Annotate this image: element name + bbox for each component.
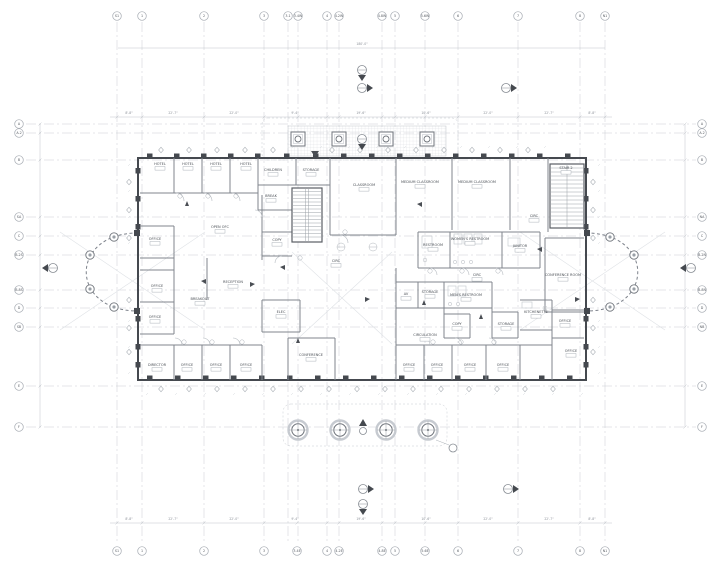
svg-text:OFFICE: OFFICE xyxy=(559,319,571,323)
room-label: CONFERENCE ROOM xyxy=(545,273,581,281)
grid-bubble: 8 xyxy=(576,547,585,556)
svg-text:BREAK: BREAK xyxy=(265,194,277,198)
svg-text:4.8W: 4.8W xyxy=(378,14,387,18)
grid-bubble: 4.2W xyxy=(335,12,344,21)
svg-text:MEN'S RESTROOM: MEN'S RESTROOM xyxy=(450,293,482,297)
room-label: OFFICE xyxy=(559,319,571,327)
svg-text:6: 6 xyxy=(457,549,459,553)
svg-text:AV: AV xyxy=(404,292,409,296)
grid-bubble: 4 xyxy=(323,12,332,21)
svg-text:OFFICE: OFFICE xyxy=(181,363,193,367)
svg-text:OFFICE: OFFICE xyxy=(151,284,163,288)
svg-text:22'-7": 22'-7" xyxy=(544,517,554,521)
svg-text:HOTEL: HOTEL xyxy=(154,162,166,166)
svg-text:CONFERENCE ROOM: CONFERENCE ROOM xyxy=(545,273,581,277)
grid-bubble: NB xyxy=(698,323,707,332)
room-label: OFFICE xyxy=(240,363,252,371)
room-label: OFFICE xyxy=(403,363,415,371)
svg-text:STORAGE: STORAGE xyxy=(498,322,515,326)
room-label: JANITOR xyxy=(512,244,528,252)
svg-text:F: F xyxy=(701,425,703,429)
svg-text:22'-7": 22'-7" xyxy=(544,111,554,115)
svg-text:OFFICE: OFFICE xyxy=(240,363,252,367)
grid-bubble: 2 xyxy=(200,547,209,556)
svg-text:N1: N1 xyxy=(603,549,608,553)
grid-bubble: E xyxy=(15,382,24,391)
svg-text:A.2: A.2 xyxy=(16,131,21,135)
room-label: CIRC xyxy=(331,259,341,267)
svg-text:2: 2 xyxy=(203,549,205,553)
svg-text:CONFERENCE: CONFERENCE xyxy=(299,353,323,357)
grid-bubble: 3 xyxy=(260,547,269,556)
svg-text:STAIR 2: STAIR 2 xyxy=(559,166,572,170)
grid-bubble: E xyxy=(698,382,707,391)
room-label: MEDIUM CLASSROOM xyxy=(401,180,439,188)
svg-text:MEDIUM CLASSROOM: MEDIUM CLASSROOM xyxy=(458,180,496,184)
svg-text:9'-4": 9'-4" xyxy=(291,111,299,115)
room-label: STORAGE xyxy=(498,322,515,330)
grid-bubble: A xyxy=(15,120,24,129)
room-label: OFFICE xyxy=(149,237,161,245)
room-label: BREAK xyxy=(265,194,277,202)
svg-text:5.6W: 5.6W xyxy=(421,14,430,18)
room-label: HOTEL xyxy=(182,162,194,170)
svg-text:5: 5 xyxy=(394,549,396,553)
room-label: OFFICE xyxy=(151,284,163,292)
grid-bubble: 3.1 xyxy=(284,12,293,21)
room-label: OFFICE xyxy=(497,363,509,371)
grid-bubble: 6 xyxy=(454,547,463,556)
svg-text:MEDIUM CLASSROOM: MEDIUM CLASSROOM xyxy=(401,180,439,184)
svg-text:STORAGE: STORAGE xyxy=(422,290,439,294)
dimension-lines xyxy=(39,48,687,525)
room-label: OPEN OFC xyxy=(211,225,230,233)
grid-bubble: 5.6W xyxy=(421,12,430,21)
svg-text:NB: NB xyxy=(700,325,705,329)
grid-bubble: SA xyxy=(15,213,24,222)
svg-text:10'-6": 10'-6" xyxy=(421,111,431,115)
floor-plan-page: 180'-0" 8'-8" 22'-7" 22'-0" 9'-4" 19'-6"… xyxy=(0,0,725,569)
grid-bubble: 4 xyxy=(323,547,332,556)
svg-text:COPY: COPY xyxy=(272,238,282,242)
grid-bubble: 1 xyxy=(138,547,147,556)
svg-text:CIRC: CIRC xyxy=(332,259,341,263)
svg-text:8: 8 xyxy=(579,549,581,553)
floor-plan-drawing: 180'-0" 8'-8" 22'-7" 22'-0" 9'-4" 19'-6"… xyxy=(0,0,725,569)
room-label: OFFICE xyxy=(210,363,222,371)
svg-text:HOTEL: HOTEL xyxy=(240,162,252,166)
room-label: CHILDREN xyxy=(264,168,282,176)
grid-bubble: 5 xyxy=(391,547,400,556)
svg-text:OFFICE: OFFICE xyxy=(149,315,161,319)
svg-text:OFFICE: OFFICE xyxy=(464,363,476,367)
svg-text:HOTEL: HOTEL xyxy=(182,162,194,166)
grid-bubble: 2 xyxy=(200,12,209,21)
room-label: RECEPTION xyxy=(223,280,243,288)
svg-text:3.1: 3.1 xyxy=(285,14,290,18)
svg-text:OPEN OFC: OPEN OFC xyxy=(211,225,230,229)
stair-1 xyxy=(292,188,322,242)
svg-text:BREAKOUT: BREAKOUT xyxy=(191,297,211,301)
grid-bubble: N1 xyxy=(601,547,610,556)
svg-text:4.8E: 4.8E xyxy=(378,549,385,553)
room-label: COPY xyxy=(452,322,463,330)
grid-bubble: C xyxy=(698,232,707,241)
svg-text:KITCHENETTE: KITCHENETTE xyxy=(524,310,548,314)
room-label: RESTROOM xyxy=(423,243,443,251)
svg-text:OFFICE: OFFICE xyxy=(210,363,222,367)
svg-text:10'-6": 10'-6" xyxy=(421,517,431,521)
room-label: DIRECTOR xyxy=(148,363,167,371)
svg-text:CHILDREN: CHILDREN xyxy=(264,168,282,172)
room-label: OFFICE xyxy=(149,315,161,323)
svg-text:22'-7": 22'-7" xyxy=(168,111,178,115)
svg-text:S1: S1 xyxy=(115,14,119,18)
room-label: OFFICE xyxy=(464,363,476,371)
svg-text:F: F xyxy=(18,425,20,429)
svg-text:HOTEL: HOTEL xyxy=(210,162,222,166)
grid-bubble: B.8N xyxy=(698,286,707,295)
svg-text:RECEPTION: RECEPTION xyxy=(223,280,243,284)
grid-bubble: 5 xyxy=(391,12,400,21)
svg-text:NA: NA xyxy=(700,215,705,219)
svg-text:B.2N: B.2N xyxy=(698,253,706,257)
svg-text:7: 7 xyxy=(517,549,519,553)
room-label: CIRC xyxy=(472,273,482,281)
svg-text:E: E xyxy=(18,384,20,388)
svg-text:OFFICE: OFFICE xyxy=(565,349,577,353)
room-label: HOTEL xyxy=(240,162,252,170)
svg-text:3.4W: 3.4W xyxy=(294,14,303,18)
svg-text:8'-8": 8'-8" xyxy=(588,517,596,521)
grid-bubble: 3.4W xyxy=(294,12,303,21)
grid-bubble: S1 xyxy=(113,12,122,21)
room-label: CIRC xyxy=(529,214,539,222)
grid-bubble: 7 xyxy=(514,12,523,21)
grid-bubble: B.2S xyxy=(15,251,24,260)
svg-text:DIRECTOR: DIRECTOR xyxy=(148,363,167,367)
svg-text:N1: N1 xyxy=(603,14,608,18)
grid-bubble: B.2N xyxy=(698,251,707,260)
dimension-texts: 180'-0" 8'-8" 22'-7" 22'-0" 9'-4" 19'-6"… xyxy=(125,42,596,521)
svg-text:22'-0": 22'-0" xyxy=(483,517,493,521)
grid-bubble: B xyxy=(698,156,707,165)
svg-text:OFFICE: OFFICE xyxy=(149,237,161,241)
grid-bubble: SB xyxy=(15,323,24,332)
svg-text:OFFICE: OFFICE xyxy=(403,363,415,367)
grid-bubble: A.2 xyxy=(698,129,707,138)
grid-bubble: 3 xyxy=(260,12,269,21)
room-label: STORAGE xyxy=(303,168,320,176)
grid-bubbles: S1 1 2 3 3.1 3.4W 4 4.2W 4.8W 5 5.6W 6 7… xyxy=(15,12,707,556)
svg-text:5: 5 xyxy=(394,14,396,18)
svg-text:B.8N: B.8N xyxy=(698,288,706,292)
svg-text:8'-8": 8'-8" xyxy=(125,517,133,521)
svg-text:3: 3 xyxy=(263,14,265,18)
svg-text:1: 1 xyxy=(141,14,143,18)
svg-text:4.2W: 4.2W xyxy=(335,14,344,18)
svg-text:19'-6": 19'-6" xyxy=(356,517,366,521)
grid-bubble: N1 xyxy=(601,12,610,21)
svg-text:CIRC: CIRC xyxy=(530,214,539,218)
room-label: CLASSROOM xyxy=(353,183,375,191)
grid-bubble: 8 xyxy=(576,12,585,21)
left-bay xyxy=(86,230,140,314)
svg-text:CIRCULATION: CIRCULATION xyxy=(413,333,437,337)
grid-bubble: NA xyxy=(698,213,707,222)
room-label: CONFERENCE xyxy=(299,353,323,361)
interior-walls xyxy=(140,158,584,380)
grid-bubble: 4.2E xyxy=(335,547,344,556)
svg-text:ELEC: ELEC xyxy=(277,310,286,314)
svg-text:RESTROOM: RESTROOM xyxy=(423,243,443,247)
svg-text:D: D xyxy=(18,306,21,310)
room-label: HOTEL xyxy=(154,162,166,170)
room-label: OFFICE xyxy=(565,349,577,357)
svg-text:7: 7 xyxy=(517,14,519,18)
svg-text:CIRC: CIRC xyxy=(473,273,482,277)
svg-text:B.8S: B.8S xyxy=(15,288,23,292)
room-label: MEN'S RESTROOM xyxy=(450,293,482,301)
svg-text:CLASSROOM: CLASSROOM xyxy=(353,183,375,187)
svg-text:3: 3 xyxy=(263,549,265,553)
svg-text:1: 1 xyxy=(141,549,143,553)
grid-bubble: B.8S xyxy=(15,286,24,295)
room-label: HOTEL xyxy=(210,162,222,170)
svg-text:WOMEN'S RESTROOM: WOMEN'S RESTROOM xyxy=(451,237,489,241)
grid-bubble: B xyxy=(15,156,24,165)
grid-bubble: F xyxy=(698,423,707,432)
svg-text:SB: SB xyxy=(17,325,22,329)
room-label: AV xyxy=(401,292,411,300)
grid-bubble: S1 xyxy=(113,547,122,556)
room-label: STORAGE xyxy=(422,290,439,298)
room-label: KITCHENETTE xyxy=(524,310,548,318)
svg-text:22'-7": 22'-7" xyxy=(168,517,178,521)
svg-text:4: 4 xyxy=(326,14,328,18)
grid-bubble: 4.8E xyxy=(378,547,387,556)
svg-text:22'-0": 22'-0" xyxy=(229,517,239,521)
room-label: OFFICE xyxy=(431,363,443,371)
grid-bubble: D xyxy=(15,304,24,313)
svg-text:19'-6": 19'-6" xyxy=(356,111,366,115)
svg-text:A.2: A.2 xyxy=(699,131,704,135)
room-label: OFFICE xyxy=(181,363,193,371)
grid-bubble: 1 xyxy=(138,12,147,21)
room-label: COPY xyxy=(272,238,283,246)
grid-bubble: 3.4E xyxy=(293,547,302,556)
svg-text:B.2S: B.2S xyxy=(15,253,23,257)
svg-text:8'-8": 8'-8" xyxy=(588,111,596,115)
svg-text:E: E xyxy=(701,384,703,388)
grid-bubble: A.2 xyxy=(15,129,24,138)
grid-bubble: 5.6E xyxy=(421,547,430,556)
svg-text:4.2E: 4.2E xyxy=(335,549,342,553)
svg-text:COPY: COPY xyxy=(452,322,462,326)
overall-dimension: 180'-0" xyxy=(356,42,368,46)
grid-bubble: D xyxy=(698,304,707,313)
svg-text:6: 6 xyxy=(457,14,459,18)
svg-text:22'-0": 22'-0" xyxy=(229,111,239,115)
svg-text:S1: S1 xyxy=(115,549,119,553)
room-label: ELEC xyxy=(276,310,286,318)
grid-bubble: 4.8W xyxy=(378,12,387,21)
svg-text:SA: SA xyxy=(17,215,22,219)
svg-text:2: 2 xyxy=(203,14,205,18)
svg-text:D: D xyxy=(701,306,704,310)
room-label: MEDIUM CLASSROOM xyxy=(458,180,496,188)
svg-text:OFFICE: OFFICE xyxy=(497,363,509,367)
svg-text:22'-0": 22'-0" xyxy=(483,111,493,115)
svg-text:STORAGE: STORAGE xyxy=(303,168,320,172)
grid-bubble: A xyxy=(698,120,707,129)
svg-text:JANITOR: JANITOR xyxy=(512,244,528,248)
svg-text:3.4E: 3.4E xyxy=(293,549,300,553)
svg-text:8: 8 xyxy=(579,14,581,18)
grid-bubble: F xyxy=(15,423,24,432)
svg-text:9'-4": 9'-4" xyxy=(291,517,299,521)
svg-text:OFFICE: OFFICE xyxy=(431,363,443,367)
svg-text:5.6E: 5.6E xyxy=(421,549,428,553)
svg-text:8'-8": 8'-8" xyxy=(125,111,133,115)
svg-text:4: 4 xyxy=(326,549,328,553)
room-label: BREAKOUT xyxy=(191,297,211,305)
grid-bubble: C xyxy=(15,232,24,241)
grid-bubble: 6 xyxy=(454,12,463,21)
grid-bubble: 7 xyxy=(514,547,523,556)
